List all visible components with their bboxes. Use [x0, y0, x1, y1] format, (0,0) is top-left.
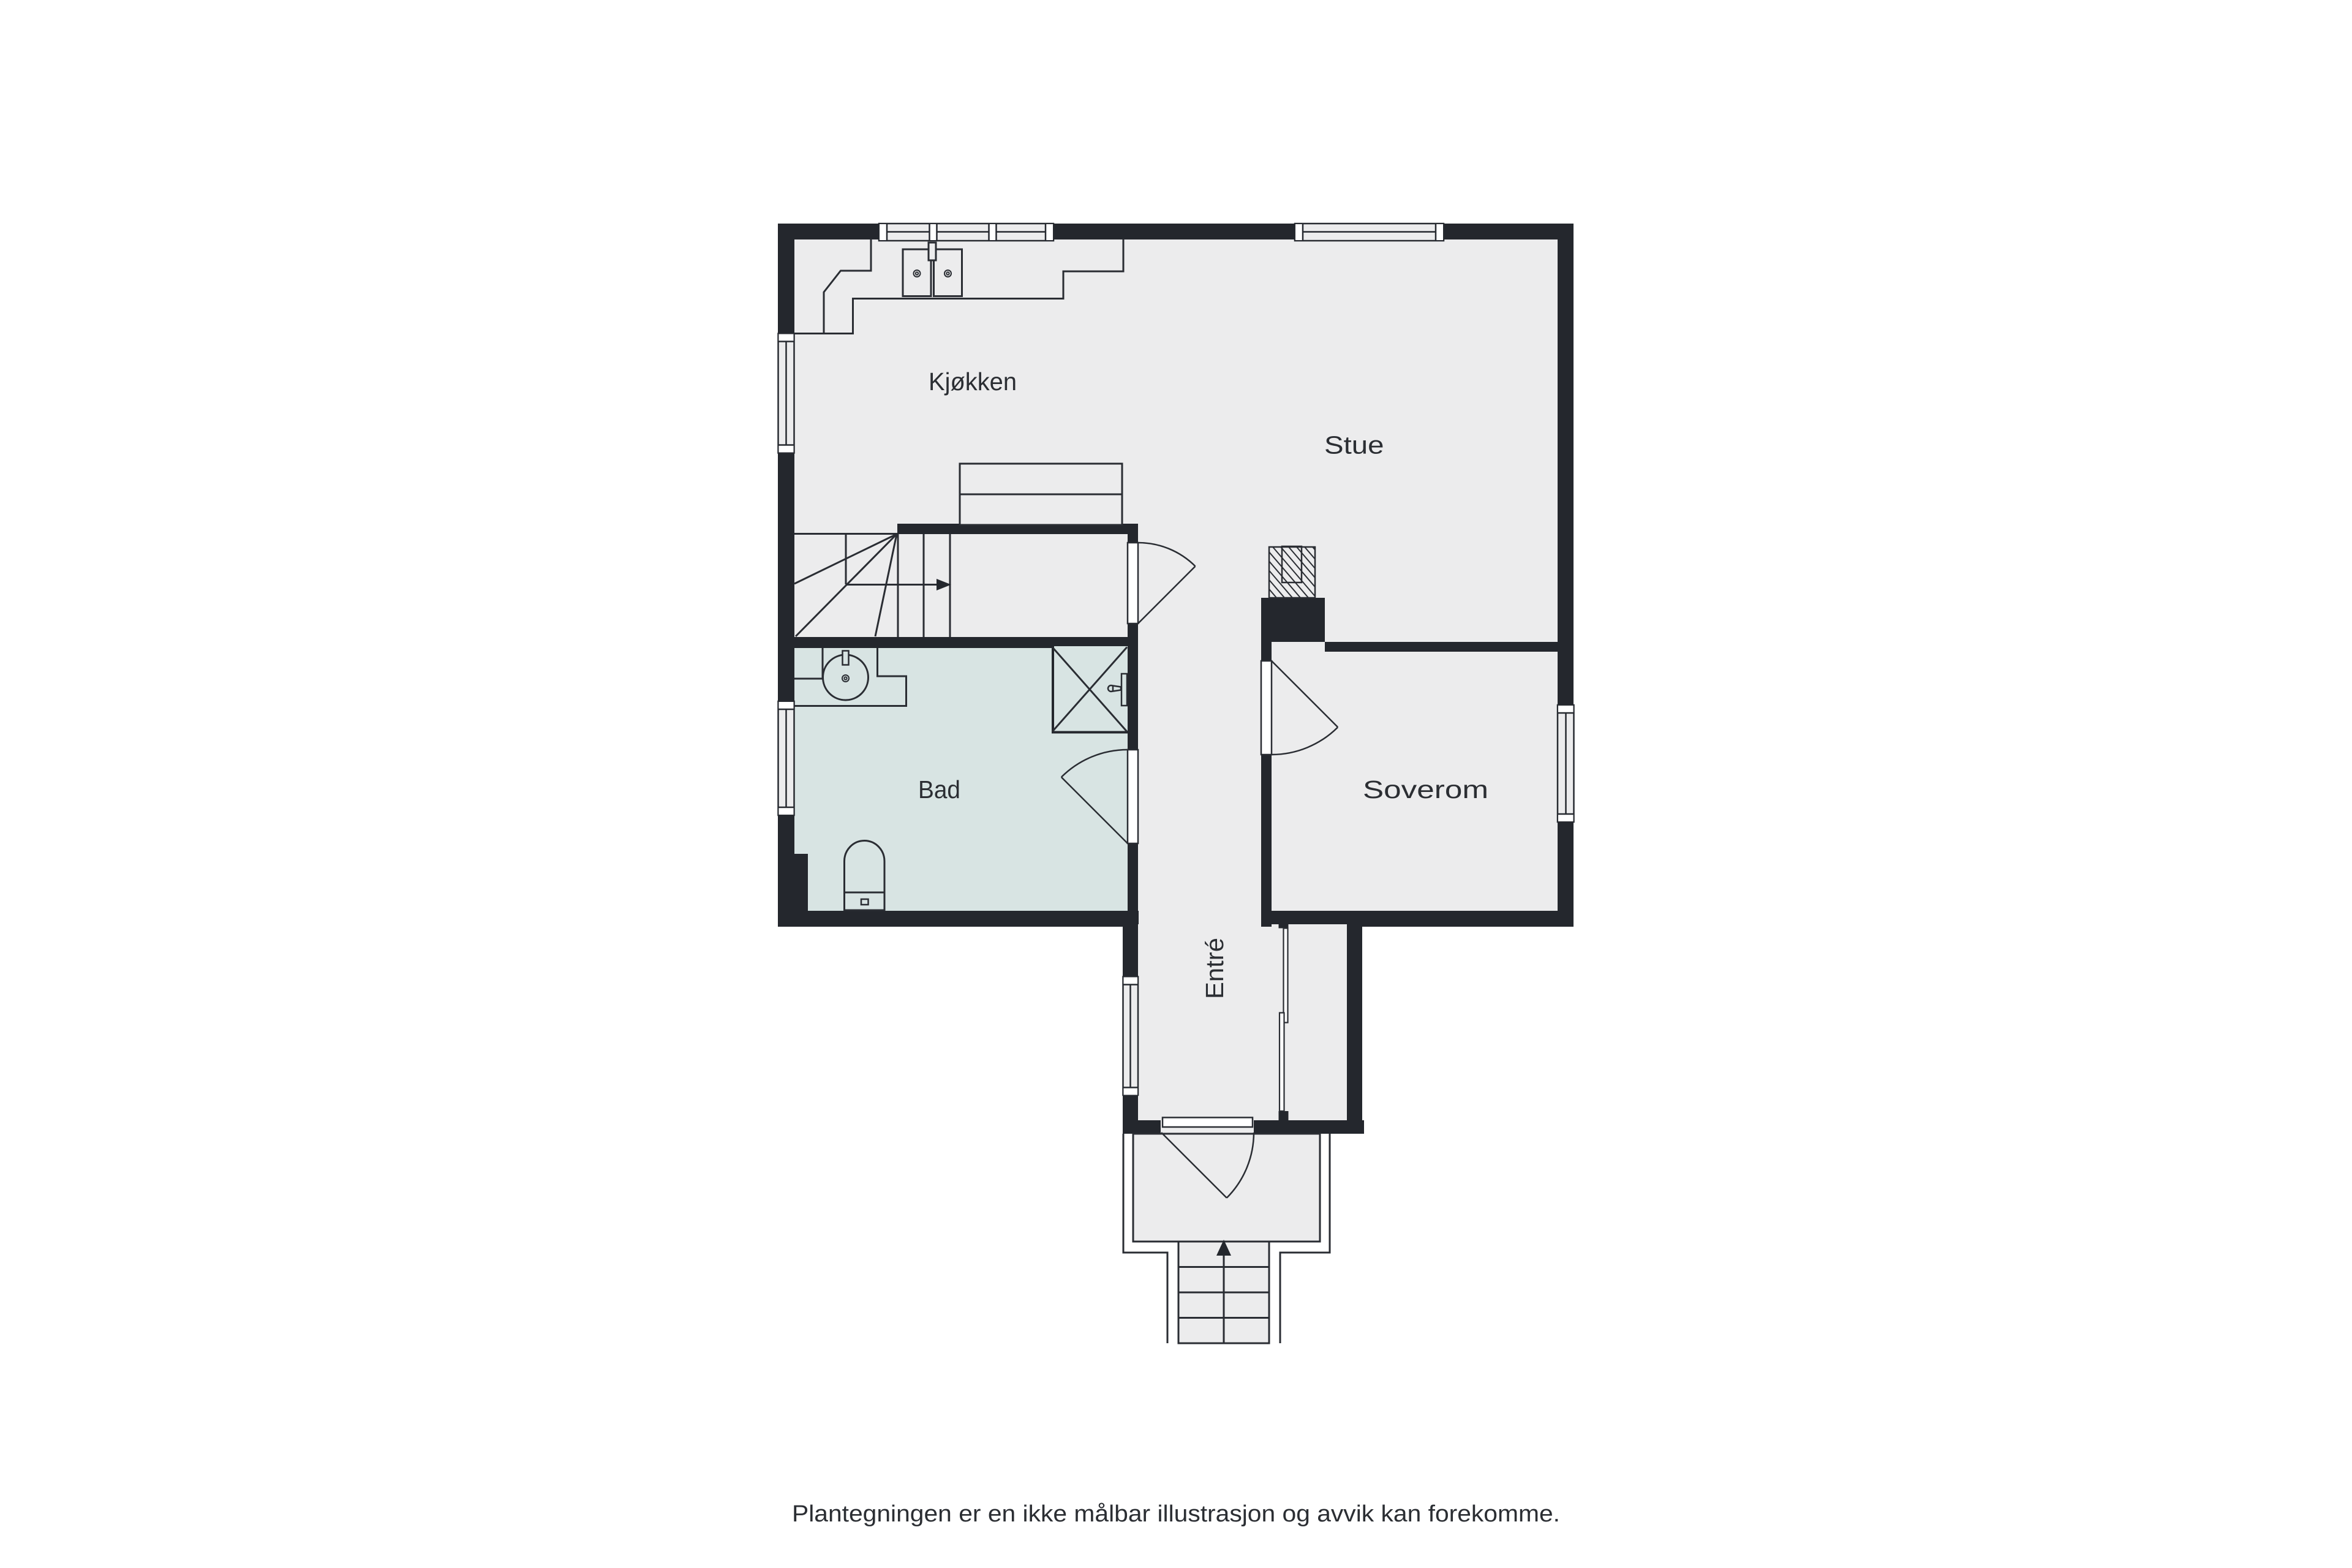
svg-text:Bad: Bad — [918, 775, 960, 804]
svg-text:Kjøkken: Kjøkken — [929, 367, 1017, 396]
svg-text:Plantegningen er en ikke målba: Plantegningen er en ikke målbar illustra… — [792, 1501, 1560, 1527]
svg-text:Entré: Entré — [1200, 938, 1229, 999]
svg-text:Soverom: Soverom — [1363, 775, 1488, 804]
svg-text:Stue: Stue — [1324, 431, 1384, 459]
